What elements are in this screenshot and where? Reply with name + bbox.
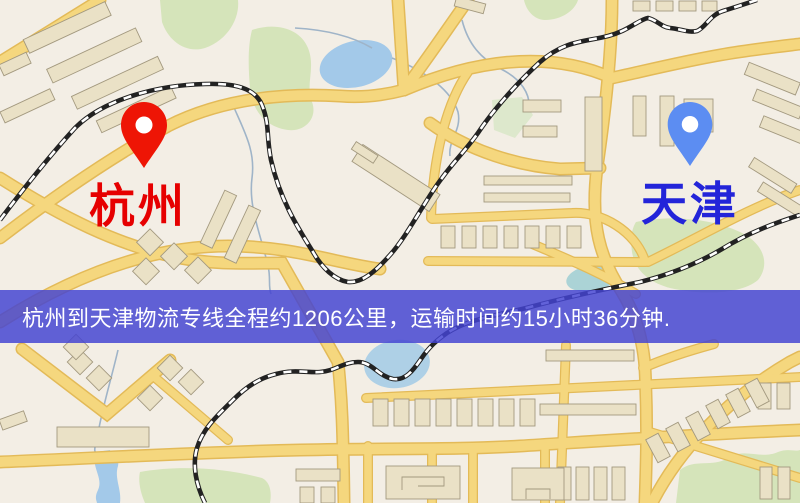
info-banner: 杭州到天津物流专线全程约1206公里，运输时间约15小时36分钟. bbox=[0, 290, 800, 343]
destination-label: 天津 bbox=[641, 179, 739, 230]
pin-hole bbox=[136, 117, 153, 134]
origin-label: 杭州 bbox=[89, 181, 187, 232]
map-canvas[interactable]: 杭州 天津 bbox=[0, 0, 800, 503]
info-banner-text: 杭州到天津物流专线全程约1206公里，运输时间约15小时36分钟. bbox=[22, 301, 671, 333]
pin-hole bbox=[682, 116, 698, 132]
logistics-map-image: 杭州 天津 杭州到天津物流专线全程约1206公里，运输时间约15小时36分钟. bbox=[0, 0, 800, 503]
